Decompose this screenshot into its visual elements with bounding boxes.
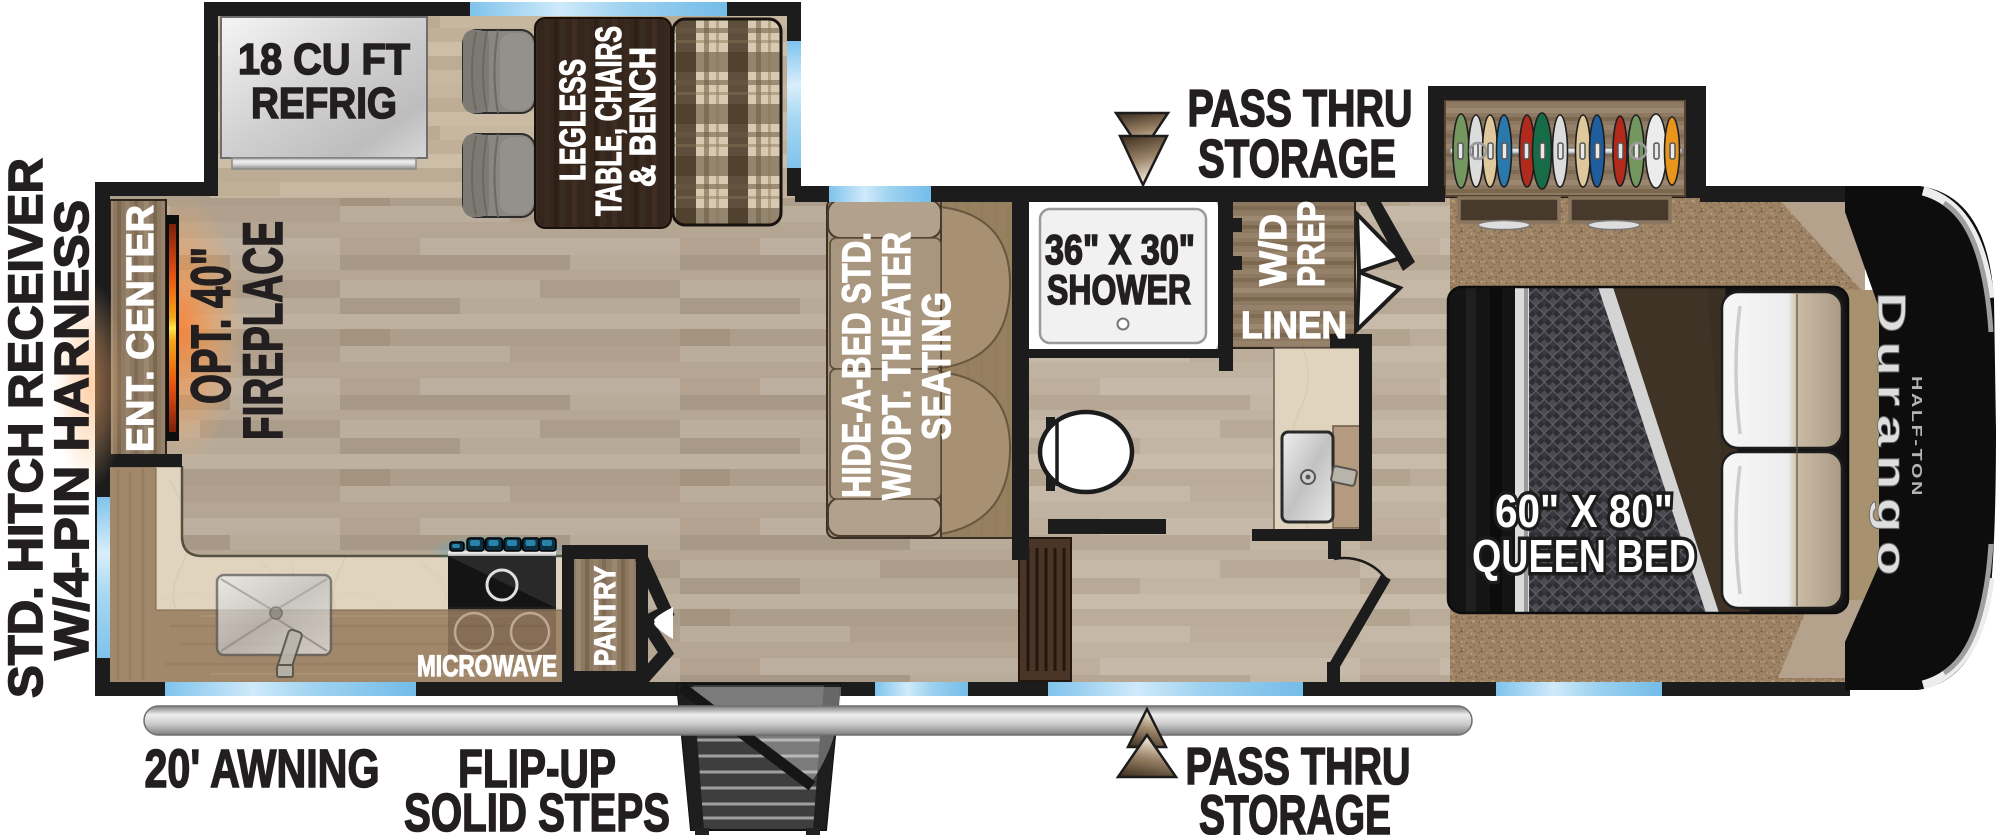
svg-text:FIREPLACE: FIREPLACE [231, 221, 294, 440]
svg-text:PREP: PREP [1291, 201, 1333, 287]
svg-text:W/4-PIN HARNESS: W/4-PIN HARNESS [46, 200, 99, 660]
svg-text:QUEEN BED: QUEEN BED [1472, 530, 1696, 582]
svg-text:SOLID STEPS: SOLID STEPS [404, 783, 670, 835]
svg-text:STORAGE: STORAGE [1199, 783, 1391, 835]
svg-text:W/OPT. THEATER: W/OPT. THEATER [875, 232, 919, 500]
svg-text:MICROWAVE: MICROWAVE [417, 650, 557, 683]
svg-text:Durango: Durango [1869, 292, 1913, 584]
svg-text:20' AWNING: 20' AWNING [145, 739, 380, 799]
svg-text:SEATING: SEATING [915, 292, 959, 440]
svg-text:STORAGE: STORAGE [1198, 129, 1396, 189]
svg-text:LEGLESS: LEGLESS [552, 59, 593, 181]
svg-text:18 CU FT: 18 CU FT [238, 35, 410, 84]
svg-text:& BENCH: & BENCH [622, 47, 663, 187]
svg-text:PANTRY: PANTRY [589, 566, 622, 666]
svg-text:HIDE-A-BED STD.: HIDE-A-BED STD. [835, 232, 879, 498]
svg-text:REFRIG: REFRIG [251, 79, 397, 128]
svg-text:LINEN: LINEN [1241, 305, 1347, 347]
svg-text:SHOWER: SHOWER [1047, 266, 1191, 313]
svg-text:ENT. CENTER: ENT. CENTER [120, 205, 162, 452]
svg-text:HALF-TON: HALF-TON [1908, 376, 1925, 498]
svg-text:W/D: W/D [1253, 214, 1295, 286]
